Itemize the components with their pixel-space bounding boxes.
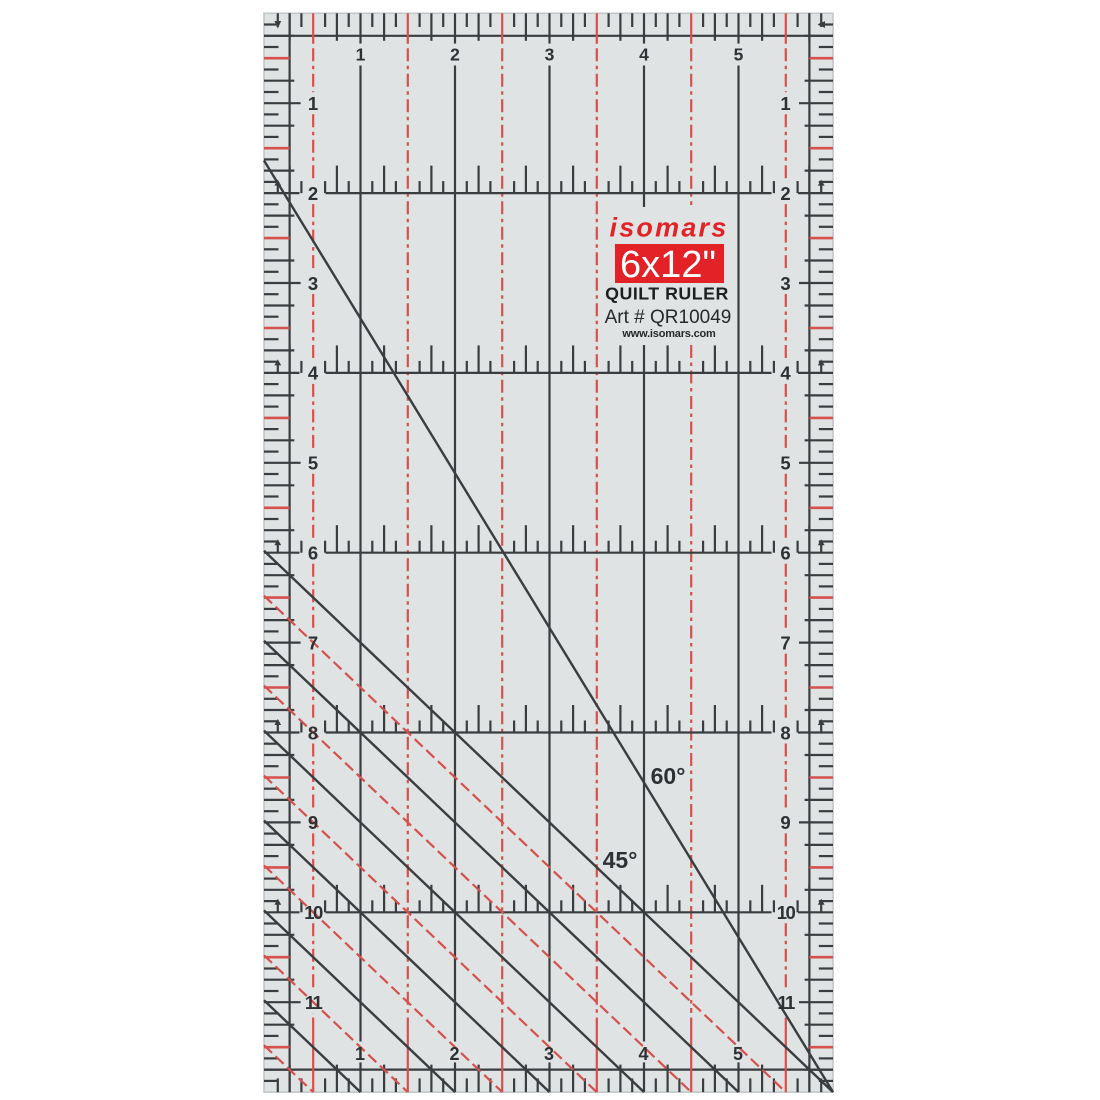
svg-text:isomars: isomars (610, 213, 729, 243)
svg-text:4: 4 (780, 363, 791, 384)
svg-text:8: 8 (780, 722, 790, 743)
svg-text:3: 3 (308, 273, 318, 294)
svg-text:1: 1 (355, 1044, 365, 1064)
svg-text:6: 6 (780, 543, 790, 564)
svg-text:4: 4 (638, 1044, 648, 1064)
svg-text:1: 1 (308, 93, 318, 114)
svg-text:7: 7 (780, 632, 790, 653)
svg-text:45°: 45° (603, 847, 638, 873)
svg-text:3: 3 (544, 1044, 554, 1064)
svg-text:9: 9 (308, 812, 318, 833)
svg-text:10: 10 (304, 902, 323, 923)
svg-text:10: 10 (777, 902, 796, 923)
svg-text:1: 1 (780, 93, 790, 114)
svg-text:5: 5 (734, 45, 744, 65)
svg-text:2: 2 (449, 1044, 459, 1064)
svg-text:11: 11 (777, 992, 795, 1013)
svg-text:5: 5 (780, 453, 790, 474)
svg-text:4: 4 (639, 45, 649, 65)
svg-text:9: 9 (780, 812, 790, 833)
svg-text:QUILT RULER: QUILT RULER (605, 284, 729, 304)
svg-text:4: 4 (308, 363, 319, 384)
svg-text:2: 2 (308, 183, 318, 204)
svg-text:Art # QR10049: Art # QR10049 (605, 307, 732, 328)
svg-text:6x12": 6x12" (620, 244, 716, 286)
svg-text:www.isomars.com: www.isomars.com (621, 328, 716, 340)
svg-text:8: 8 (308, 722, 318, 743)
svg-text:6: 6 (308, 543, 318, 564)
svg-text:11: 11 (305, 992, 323, 1013)
svg-text:7: 7 (308, 632, 318, 653)
svg-text:5: 5 (308, 453, 318, 474)
svg-text:2: 2 (450, 45, 460, 65)
svg-text:3: 3 (780, 273, 790, 294)
svg-text:60°: 60° (651, 763, 686, 789)
svg-text:3: 3 (545, 45, 555, 65)
svg-text:5: 5 (733, 1044, 743, 1064)
svg-text:2: 2 (780, 183, 790, 204)
svg-text:1: 1 (356, 45, 366, 65)
